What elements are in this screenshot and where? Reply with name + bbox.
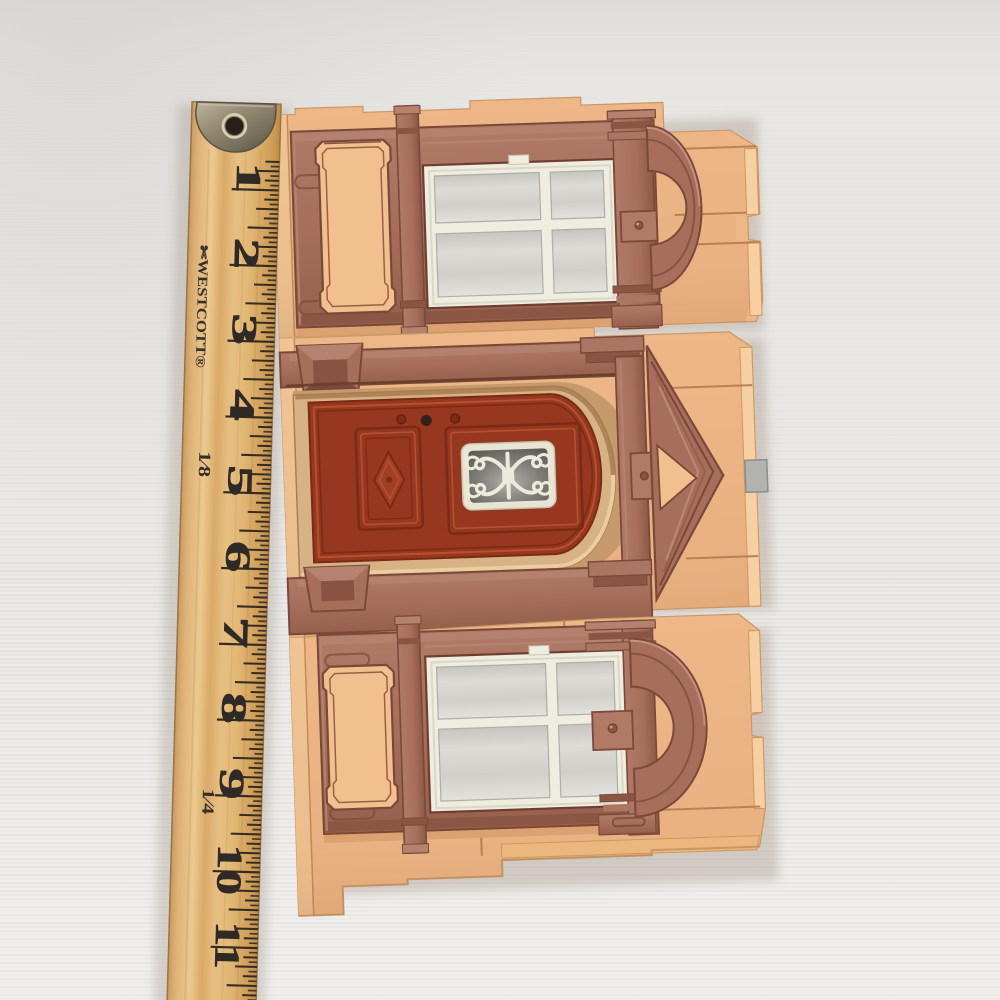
svg-text:6: 6: [218, 540, 257, 573]
svg-text:11: 11: [207, 921, 247, 970]
svg-text:1: 1: [228, 162, 267, 195]
svg-text:3: 3: [224, 313, 263, 346]
svg-text:10: 10: [209, 844, 249, 896]
svg-text:4: 4: [222, 389, 261, 422]
svg-text:1⁄8: 1⁄8: [194, 451, 214, 477]
svg-text:2: 2: [226, 237, 265, 270]
svg-text:8: 8: [214, 692, 253, 725]
svg-text:5: 5: [220, 465, 259, 498]
svg-text:1⁄4: 1⁄4: [198, 788, 218, 814]
svg-text:7: 7: [216, 616, 255, 649]
